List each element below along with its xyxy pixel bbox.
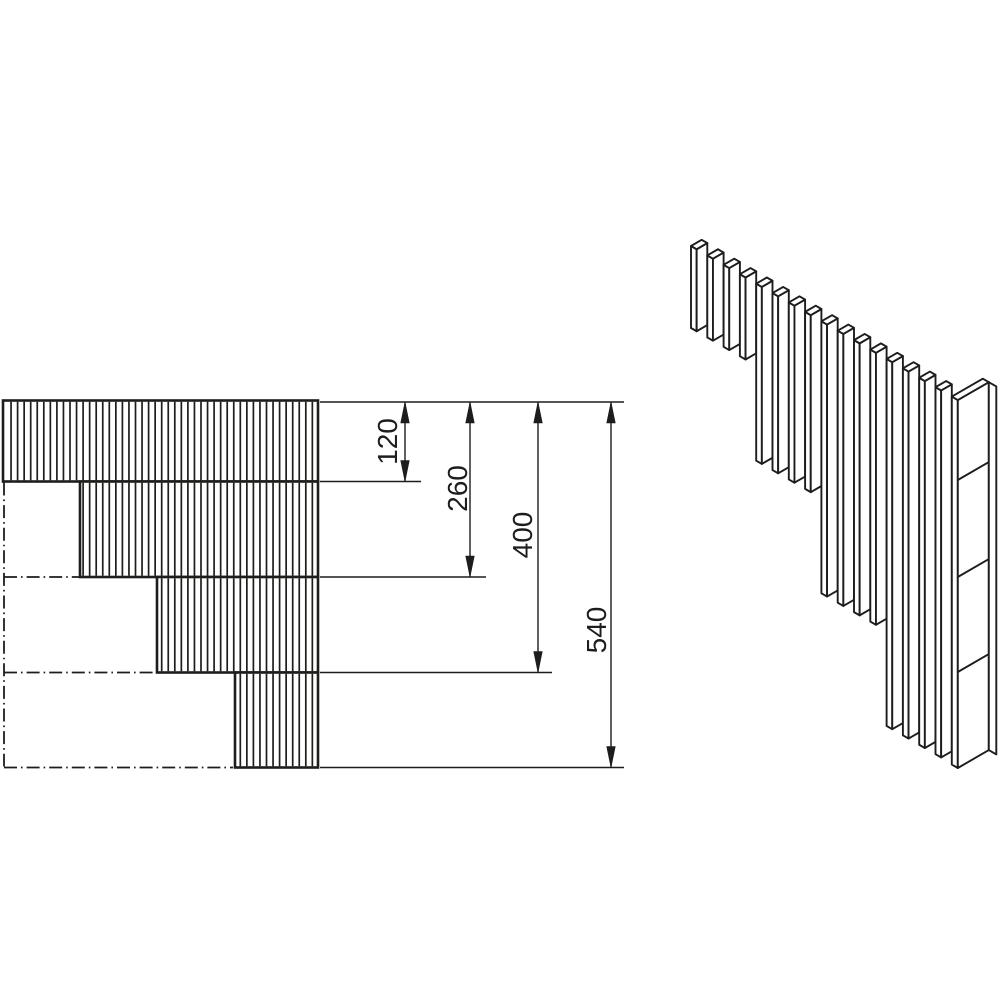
dimension-label: 260 [442, 465, 473, 512]
dimension-label: 120 [372, 418, 403, 465]
hatched-band-2 [80, 482, 318, 578]
slat-5 [756, 278, 772, 464]
corner-post [952, 379, 997, 768]
slat-side-face [843, 328, 854, 606]
arrowhead-down [607, 747, 616, 768]
dimension-540: 540 [320, 402, 624, 768]
slat-side-face [746, 271, 757, 359]
hatched-band-3 [157, 577, 318, 673]
slat-16 [936, 381, 952, 757]
hatched-band-1 [3, 401, 318, 482]
slat-side-face [892, 356, 903, 729]
slat-side-face [941, 384, 952, 757]
slat-side-face [778, 290, 789, 473]
slat-9 [821, 315, 837, 596]
slat-side-face [827, 318, 838, 596]
corner-detail-drawing: 120260400540 [0, 0, 1000, 1000]
slat-12 [870, 343, 886, 624]
dimension-annotations: 120260400540 [320, 402, 624, 768]
slat-side-face [713, 253, 724, 341]
post-right-edge-face [989, 382, 997, 754]
dimension-400: 400 [320, 402, 552, 673]
arrowhead-up [466, 402, 475, 423]
slat-1 [691, 240, 707, 331]
isometric-view [691, 240, 996, 768]
elevation-view [3, 401, 318, 768]
slat-15 [919, 372, 935, 748]
slat-side-face [794, 300, 805, 483]
slat-side-face [762, 281, 773, 464]
slat-10 [838, 325, 854, 606]
dimension-label: 400 [507, 512, 538, 559]
arrowhead-down [534, 652, 543, 673]
slat-side-face [909, 365, 920, 738]
dimension-label: 540 [581, 607, 612, 654]
arrowhead-down [466, 556, 475, 577]
technical-drawing-canvas: 120260400540 [0, 0, 1000, 1000]
slat-6 [773, 287, 789, 473]
slat-side-face [860, 337, 871, 615]
slat-8 [805, 306, 821, 492]
slat-side-face [811, 309, 822, 492]
slat-2 [707, 249, 723, 340]
slat-side-face [925, 375, 936, 748]
slat-4 [740, 268, 756, 359]
slat-side-face [729, 262, 740, 350]
arrowhead-up [534, 402, 543, 423]
slat-11 [854, 334, 870, 615]
dimension-120: 120 [320, 402, 421, 482]
arrowhead-up [607, 402, 616, 423]
slat-side-face [697, 243, 708, 331]
dimension-260: 260 [320, 402, 486, 577]
slat-7 [789, 296, 805, 482]
slat-14 [903, 362, 919, 738]
slat-side-face [876, 347, 887, 625]
slat-13 [887, 353, 903, 729]
hatched-band-4 [235, 673, 318, 768]
slat-3 [724, 259, 740, 350]
